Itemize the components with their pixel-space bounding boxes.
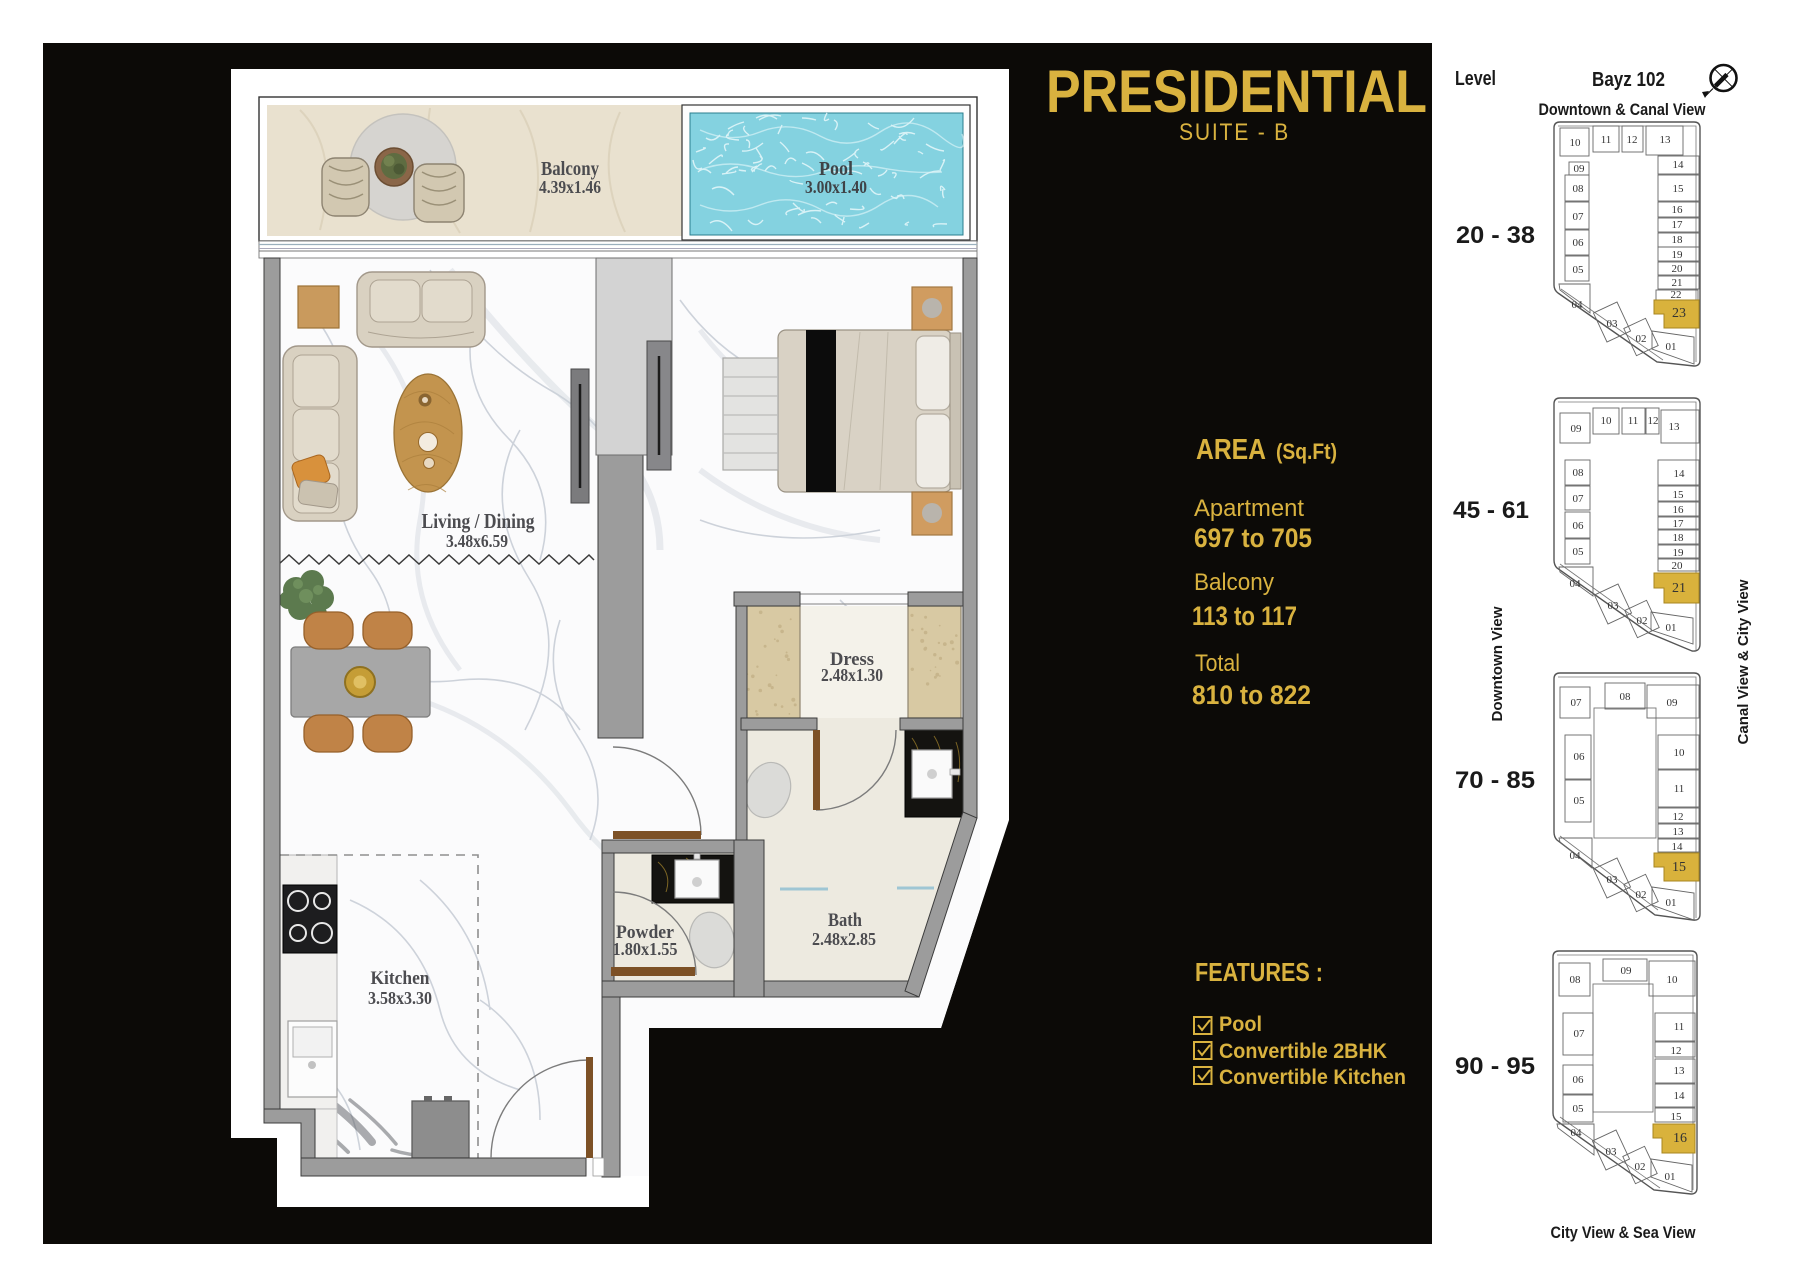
svg-text:08: 08 — [1573, 183, 1585, 195]
svg-text:15: 15 — [1673, 489, 1685, 501]
svg-text:Convertible 2BHK: Convertible 2BHK — [1219, 1040, 1387, 1063]
svg-text:12: 12 — [1673, 811, 1684, 823]
svg-text:(Sq.Ft): (Sq.Ft) — [1276, 439, 1337, 464]
svg-text:Pool: Pool — [1219, 1013, 1262, 1036]
svg-text:21: 21 — [1672, 277, 1683, 289]
svg-text:11: 11 — [1628, 415, 1639, 427]
svg-text:17: 17 — [1673, 518, 1685, 530]
svg-text:04: 04 — [1570, 578, 1582, 590]
svg-text:09: 09 — [1667, 697, 1679, 709]
svg-text:15: 15 — [1673, 183, 1685, 195]
svg-text:Total: Total — [1195, 650, 1240, 677]
svg-text:12: 12 — [1648, 415, 1659, 427]
svg-text:06: 06 — [1573, 1074, 1585, 1086]
svg-text:45 - 61: 45 - 61 — [1453, 497, 1529, 524]
svg-text:10: 10 — [1601, 415, 1613, 427]
svg-text:02: 02 — [1637, 615, 1648, 627]
svg-text:810 to 822: 810 to 822 — [1192, 680, 1311, 710]
svg-text:09: 09 — [1574, 163, 1586, 175]
svg-text:03: 03 — [1608, 600, 1620, 612]
svg-text:05: 05 — [1573, 1103, 1585, 1115]
svg-text:City View & Sea View: City View & Sea View — [1551, 1223, 1697, 1242]
svg-text:08: 08 — [1620, 691, 1632, 703]
svg-text:03: 03 — [1607, 874, 1619, 886]
svg-text:07: 07 — [1573, 493, 1585, 505]
svg-text:1.80x1.55: 1.80x1.55 — [613, 939, 678, 959]
svg-text:06: 06 — [1573, 237, 1585, 249]
svg-text:Living / Dining: Living / Dining — [422, 509, 535, 533]
svg-text:22: 22 — [1671, 289, 1682, 301]
svg-text:15: 15 — [1671, 1111, 1683, 1123]
svg-text:Downtown & Canal View: Downtown & Canal View — [1539, 100, 1707, 119]
svg-text:11: 11 — [1674, 1021, 1685, 1033]
svg-text:02: 02 — [1636, 333, 1647, 345]
svg-text:10: 10 — [1667, 974, 1679, 986]
svg-text:Convertible Kitchen: Convertible Kitchen — [1219, 1066, 1406, 1089]
svg-text:02: 02 — [1635, 1161, 1646, 1173]
svg-text:20: 20 — [1672, 263, 1684, 275]
svg-text:01: 01 — [1666, 897, 1677, 909]
svg-text:2.48x2.85: 2.48x2.85 — [812, 929, 876, 949]
svg-text:2.48x1.30: 2.48x1.30 — [821, 665, 883, 685]
svg-text:14: 14 — [1674, 468, 1686, 480]
svg-text:03: 03 — [1606, 1146, 1618, 1158]
svg-text:113 to 117: 113 to 117 — [1192, 601, 1297, 631]
svg-text:3.00x1.40: 3.00x1.40 — [805, 177, 867, 197]
svg-text:01: 01 — [1665, 1171, 1676, 1183]
svg-text:08: 08 — [1570, 974, 1582, 986]
svg-text:Bath: Bath — [828, 910, 862, 931]
svg-text:16: 16 — [1672, 204, 1684, 216]
svg-text:11: 11 — [1674, 783, 1685, 795]
svg-text:18: 18 — [1673, 532, 1685, 544]
svg-text:14: 14 — [1674, 1090, 1686, 1102]
svg-text:Canal View & City View: Canal View & City View — [1735, 579, 1752, 744]
svg-text:15: 15 — [1672, 860, 1686, 875]
svg-text:3.48x6.59: 3.48x6.59 — [446, 531, 508, 551]
svg-text:07: 07 — [1571, 697, 1583, 709]
svg-text:70 - 85: 70 - 85 — [1455, 767, 1535, 794]
svg-text:04: 04 — [1571, 1127, 1583, 1139]
svg-text:13: 13 — [1669, 421, 1681, 433]
svg-text:Balcony: Balcony — [1194, 569, 1274, 596]
svg-text:05: 05 — [1573, 546, 1585, 558]
svg-text:19: 19 — [1673, 547, 1685, 559]
svg-text:09: 09 — [1621, 965, 1633, 977]
svg-text:06: 06 — [1573, 520, 1585, 532]
svg-text:10: 10 — [1674, 747, 1686, 759]
svg-text:Bayz 102: Bayz 102 — [1592, 69, 1665, 91]
svg-text:697 to 705: 697 to 705 — [1194, 523, 1312, 553]
svg-text:FEATURES :: FEATURES : — [1195, 957, 1323, 987]
svg-text:05: 05 — [1574, 795, 1586, 807]
svg-text:PRESIDENTIAL: PRESIDENTIAL — [1046, 58, 1427, 125]
svg-text:01: 01 — [1666, 622, 1677, 634]
svg-text:13: 13 — [1674, 1065, 1686, 1077]
svg-text:20 - 38: 20 - 38 — [1456, 222, 1535, 249]
svg-text:14: 14 — [1673, 159, 1685, 171]
svg-text:02: 02 — [1636, 889, 1647, 901]
svg-text:4.39x1.46: 4.39x1.46 — [539, 177, 601, 197]
svg-text:16: 16 — [1673, 1131, 1687, 1146]
svg-text:07: 07 — [1574, 1028, 1586, 1040]
svg-text:14: 14 — [1672, 841, 1684, 853]
svg-text:19: 19 — [1672, 249, 1684, 261]
svg-text:Downtown View: Downtown View — [1489, 606, 1506, 721]
svg-text:Kitchen: Kitchen — [371, 968, 430, 989]
svg-text:23: 23 — [1672, 306, 1686, 321]
svg-text:05: 05 — [1573, 264, 1585, 276]
svg-text:13: 13 — [1660, 134, 1672, 146]
svg-text:SUITE - B: SUITE - B — [1179, 119, 1290, 146]
svg-text:09: 09 — [1571, 423, 1583, 435]
svg-text:3.58x3.30: 3.58x3.30 — [368, 988, 432, 1008]
svg-text:12: 12 — [1671, 1045, 1682, 1057]
svg-text:10: 10 — [1570, 137, 1582, 149]
svg-text:04: 04 — [1572, 299, 1584, 311]
svg-text:90 - 95: 90 - 95 — [1455, 1053, 1535, 1080]
svg-text:17: 17 — [1672, 219, 1684, 231]
svg-text:Apartment: Apartment — [1194, 495, 1304, 522]
svg-text:18: 18 — [1672, 234, 1684, 246]
svg-text:12: 12 — [1627, 134, 1638, 146]
svg-text:07: 07 — [1573, 211, 1585, 223]
svg-text:21: 21 — [1672, 581, 1686, 596]
svg-text:AREA: AREA — [1196, 434, 1266, 466]
svg-text:13: 13 — [1673, 826, 1685, 838]
svg-text:11: 11 — [1601, 134, 1612, 146]
svg-text:08: 08 — [1573, 467, 1585, 479]
svg-text:16: 16 — [1673, 504, 1685, 516]
svg-text:20: 20 — [1672, 560, 1684, 572]
svg-text:Level: Level — [1455, 68, 1496, 90]
svg-text:04: 04 — [1570, 850, 1582, 862]
svg-text:03: 03 — [1607, 318, 1619, 330]
svg-text:01: 01 — [1666, 341, 1677, 353]
svg-text:06: 06 — [1574, 751, 1586, 763]
